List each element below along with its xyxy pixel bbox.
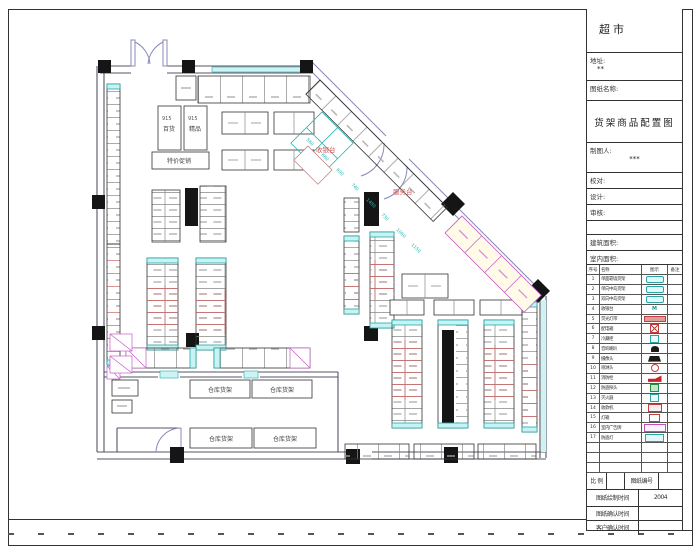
box-red-sm-icon (649, 414, 660, 422)
legend-row: 13灭火器 (587, 394, 682, 404)
drawing-confirm-label: 图纸确认时间 (587, 507, 639, 520)
drawing-no-value (659, 473, 682, 489)
drawing-confirm-value (639, 507, 682, 520)
review-cell: 审核: (587, 205, 682, 221)
diagonal-magenta-run (445, 216, 541, 312)
flag-red-icon (648, 375, 662, 382)
customer-confirm-value (639, 521, 682, 535)
dimension-label: 690 (335, 167, 345, 177)
title-block: 超市 地址: ** 图纸名称: 货架商品配置图 制图人: *** 校对: 设计:… (586, 9, 683, 530)
right-wall-strip (541, 300, 546, 452)
draw-time-row: 图纸绘制时间 2004 (587, 490, 682, 507)
project-title: 超市 (599, 21, 627, 37)
legend-header-no: 序号 (587, 265, 600, 274)
address-cell: 地址: ** (587, 53, 682, 81)
legend-row: 15灯箱 (587, 413, 682, 423)
frame-bottom (8, 545, 693, 546)
box-cyan-icon (645, 434, 664, 442)
dept-model-1: 915 (162, 116, 172, 122)
drawing-sheet: 收银台 服务台 915 百货 915 精品 特价促销 仓库货架 仓库货架 仓库货… (0, 0, 700, 555)
floor-plan-svg: 收银台 服务台 915 百货 915 精品 特价促销 仓库货架 仓库货架 仓库货… (0, 0, 586, 530)
legend-row: 8音响喇叭 (587, 344, 682, 354)
legend-header-icon: 图示 (642, 265, 668, 274)
cashier-label: 收银台 (316, 145, 336, 154)
draw-time-value: 2004 (639, 490, 682, 506)
shelf-runs (107, 76, 537, 459)
customer-confirm-label: 客户确认时间 (587, 521, 639, 535)
entrance-double-door (131, 40, 167, 66)
dept-label-2: 精品 (189, 125, 201, 133)
m-text-icon: M (652, 306, 657, 312)
box-red-text-icon (648, 404, 662, 412)
drawing-title: 货架商品配置图 (587, 115, 682, 129)
legend-row: 7冷藏柜 (587, 334, 682, 344)
scale-value (607, 473, 625, 489)
design-cell: 设计: (587, 189, 682, 205)
service-desk-label: 服务台 (393, 187, 413, 196)
storage-label-3: 仓库货架 (209, 435, 233, 443)
legend-row: 5荧光灯带 (587, 315, 682, 325)
spare-cell (587, 221, 682, 235)
indoor-area-cell: 室内面积: (587, 251, 682, 265)
legend-row: 14收款机 (587, 404, 682, 414)
legend-row: 10喷淋头 (587, 364, 682, 374)
project-title-cell: 超市 (587, 9, 682, 53)
box-magenta-icon (644, 424, 666, 432)
rect-cyan-icon (646, 296, 664, 303)
legend-header: 序号 名称 图示 备注 (587, 265, 682, 275)
small-cyan-icon (650, 335, 659, 343)
drafter-value: *** (587, 155, 682, 163)
storage-label-4: 仓库货架 (273, 435, 297, 443)
design-label: 设计: (590, 191, 605, 201)
drawing-confirm-row: 图纸确认时间 (587, 507, 682, 521)
dome-icon (648, 356, 661, 362)
drafter-cell: 制图人: *** (587, 143, 682, 173)
scale-label: 比 例 (587, 473, 607, 489)
legend-row: 4收银台M (587, 305, 682, 315)
drawing-name-cell: 图纸名称: (587, 81, 682, 101)
rect-cyan-icon (646, 276, 664, 283)
legend-header-name: 名称 (600, 265, 642, 274)
scale-number-row: 比 例 图纸编号 (587, 473, 682, 490)
address-value: ** (597, 65, 604, 73)
drawing-name-label: 图纸名称: (590, 83, 618, 93)
legend-header-note: 备注 (668, 265, 682, 274)
dimension-label: 1060 (395, 227, 407, 239)
draw-time-label: 图纸绘制时间 (587, 490, 639, 506)
address-label: 地址: (590, 55, 605, 65)
legend-row: 6配电箱 (587, 324, 682, 334)
review-label: 审核: (590, 207, 605, 217)
drawing-title-cell: 货架商品配置图 (587, 101, 682, 143)
legend-row: 1单面靠墙货架 (587, 275, 682, 285)
small-cyan-icon (650, 394, 659, 402)
rect-cyan-icon (646, 286, 664, 293)
legend-row: 3双向中岛货架 (587, 295, 682, 305)
check-cell: 校对: (587, 173, 682, 189)
frame-right (692, 9, 693, 546)
dimension-label: 730 (380, 212, 390, 222)
speaker-icon (651, 346, 659, 352)
legend-row: 9摄像头 (587, 354, 682, 364)
legend-row (587, 453, 682, 463)
dimension-label: 740 (350, 182, 360, 192)
building-area-label: 建筑面积: (590, 237, 618, 247)
legend-row: 17防盗灯 (587, 433, 682, 443)
legend-row (587, 443, 682, 453)
legend-row: 11消防栓 (587, 374, 682, 384)
legend-row: 2单向中岛货架 (587, 285, 682, 295)
drafter-label: 制图人: (590, 145, 612, 155)
legend-row: 12防盗探头 (587, 384, 682, 394)
top-window (212, 67, 308, 72)
drawing-no-label: 图纸编号 (625, 473, 659, 489)
storage-label-1: 仓库货架 (208, 386, 232, 394)
building-area-cell: 建筑面积: (587, 235, 682, 251)
box-green-icon (650, 384, 659, 392)
customer-confirm-row: 客户确认时间 (587, 521, 682, 535)
box-red-x-icon (650, 324, 659, 333)
indoor-area-label: 室内面积: (590, 253, 618, 263)
dimension-label: 560 (305, 137, 315, 147)
circle-red-icon (651, 364, 659, 372)
check-label: 校对: (590, 175, 605, 185)
storage-label-2: 仓库货架 (270, 386, 294, 394)
dimension-label: 1150 (410, 242, 422, 254)
dept-model-2: 915 (188, 116, 198, 122)
legend-table: 序号 名称 图示 备注 1单面靠墙货架2单向中岛货架3双向中岛货架4收银台M5荧… (587, 265, 682, 473)
legend-row (587, 463, 682, 473)
legend-table-body: 1单面靠墙货架2单向中岛货架3双向中岛货架4收银台M5荧光灯带6配电箱7冷藏柜8… (587, 275, 682, 473)
promo-label: 特价促销 (167, 157, 191, 165)
dept-label-1: 百货 (163, 125, 175, 133)
legend-row: 16室内广告牌 (587, 423, 682, 433)
bar-red-icon (644, 316, 666, 322)
